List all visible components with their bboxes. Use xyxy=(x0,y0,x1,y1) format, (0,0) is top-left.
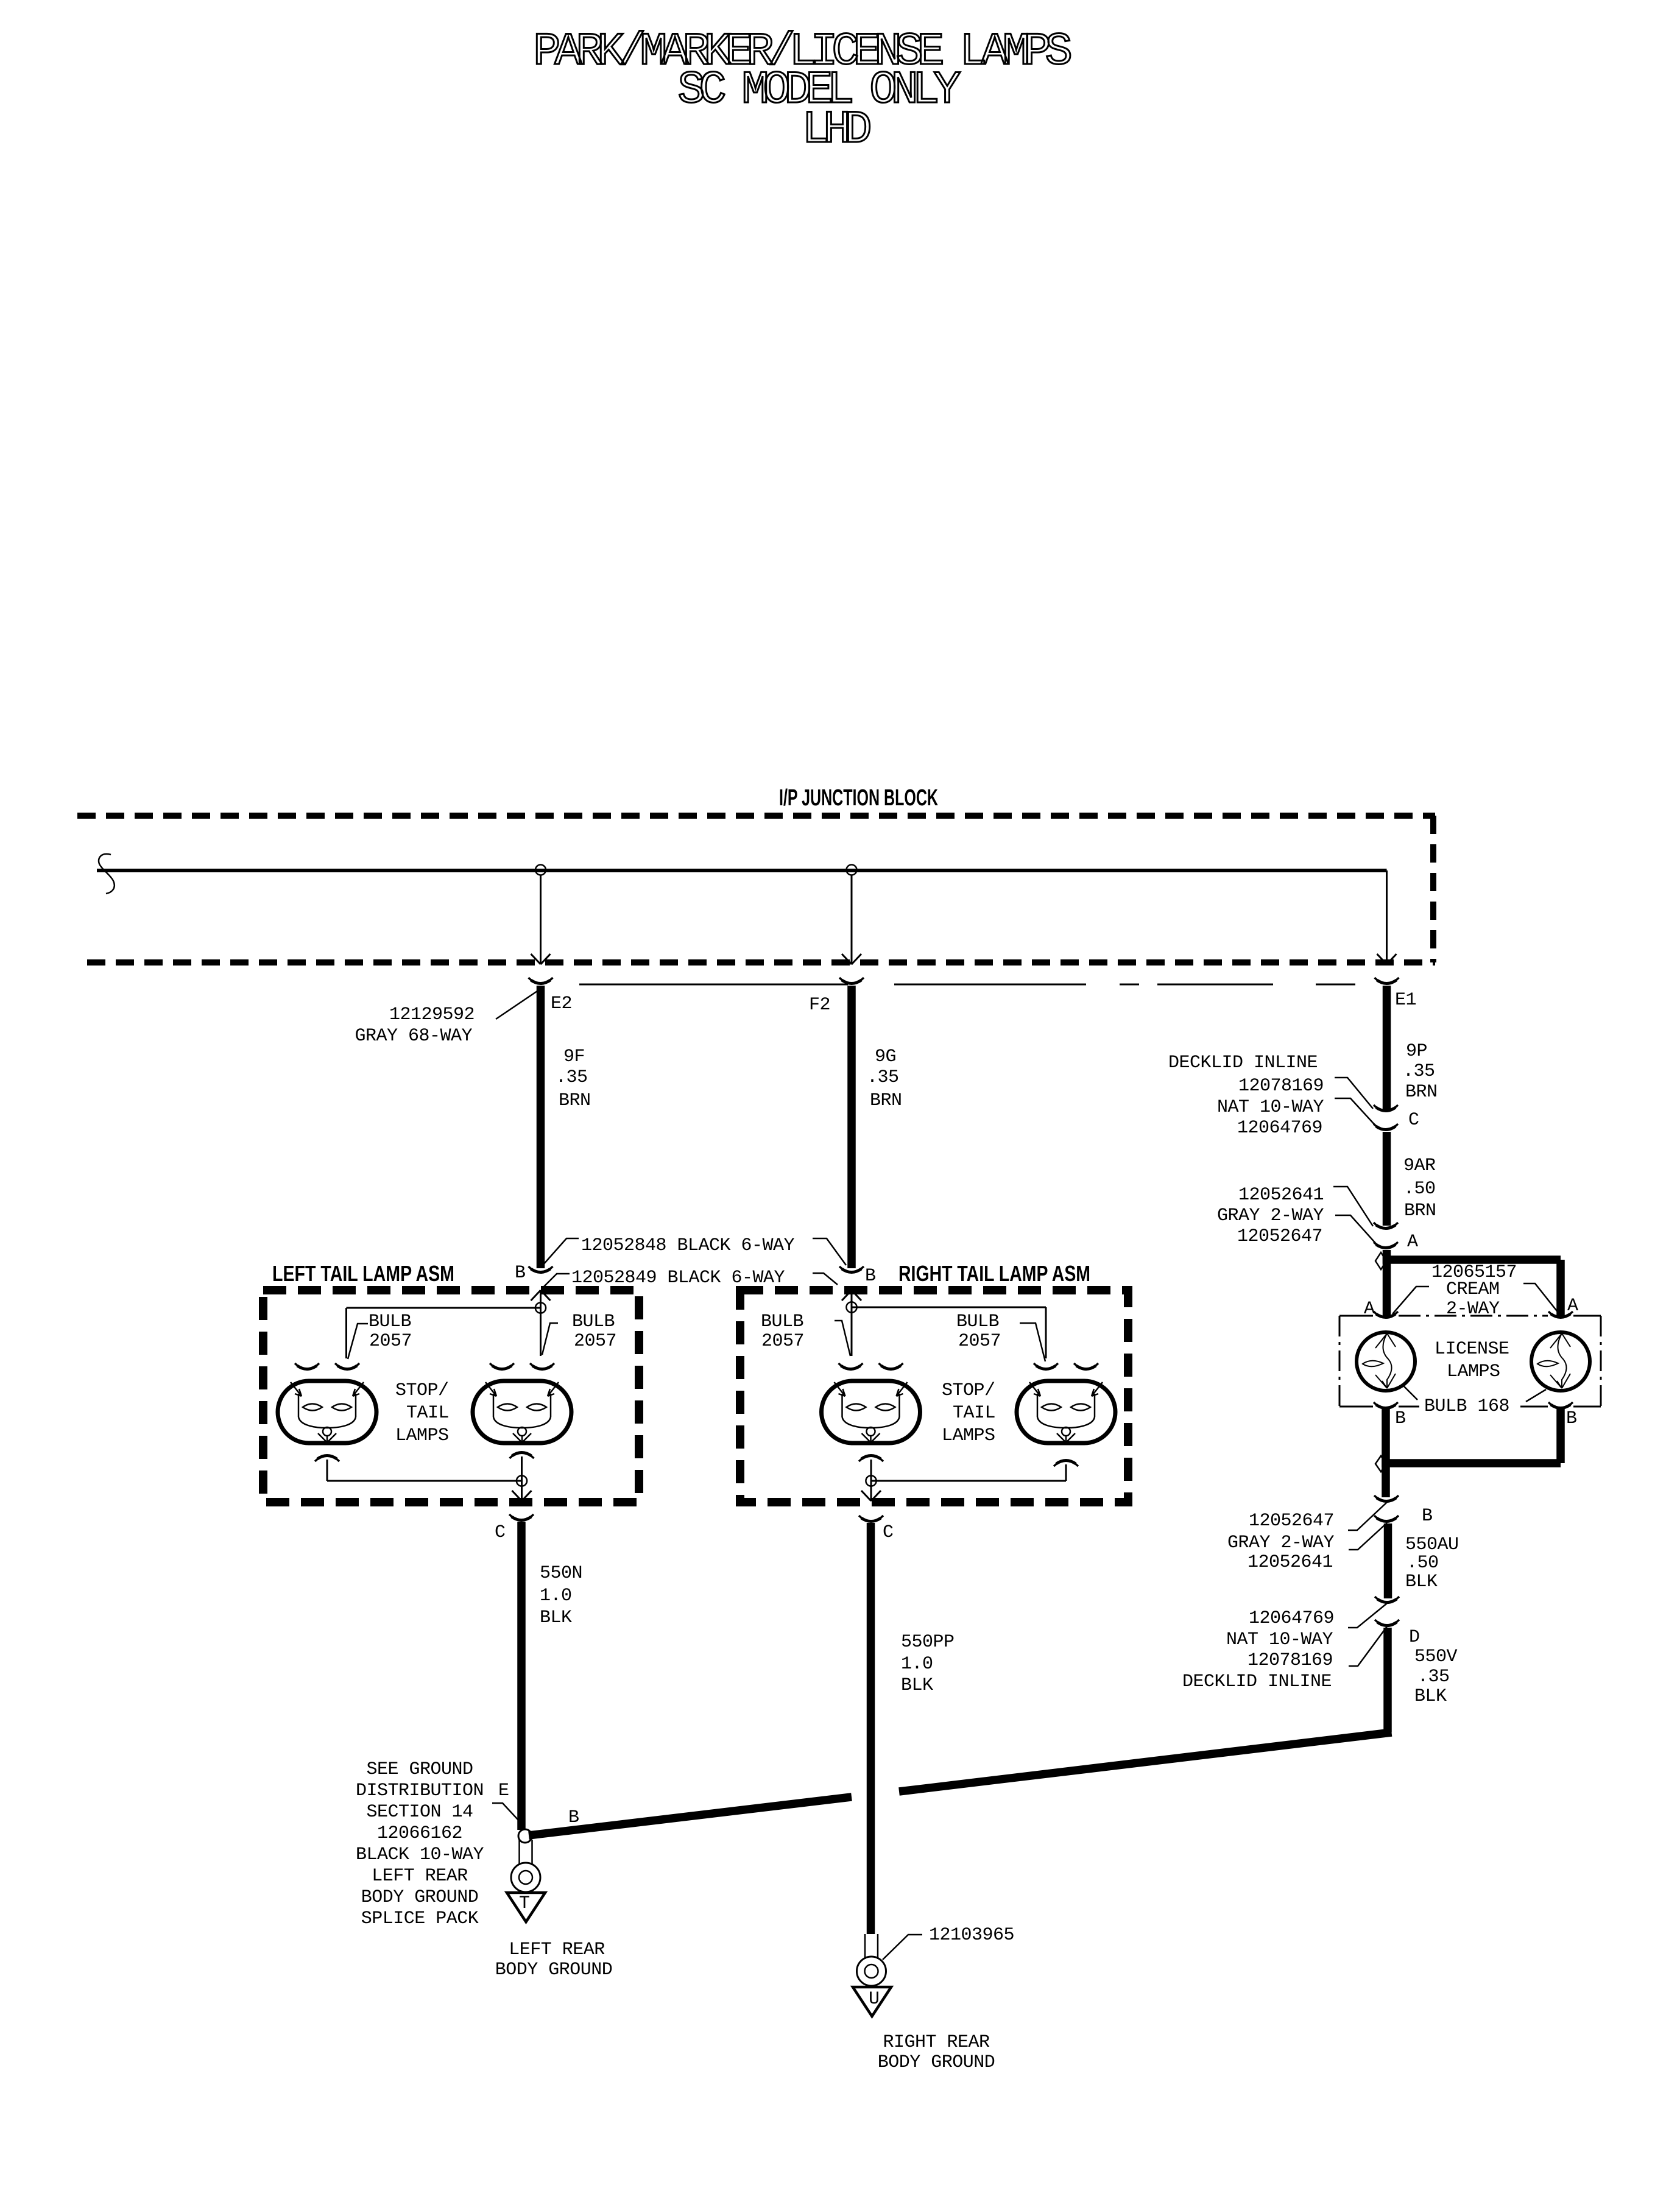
svg-text:GRAY 2-WAY: GRAY 2-WAY xyxy=(1227,1533,1335,1553)
svg-text:12078169: 12078169 xyxy=(1238,1076,1324,1096)
svg-text:9AR: 9AR xyxy=(1403,1156,1436,1176)
svg-text:TAIL: TAIL xyxy=(406,1403,449,1424)
svg-text:.35: .35 xyxy=(867,1067,899,1088)
svg-text:A: A xyxy=(1567,1296,1578,1316)
svg-text:BULB: BULB xyxy=(369,1312,411,1332)
svg-text:STOP/: STOP/ xyxy=(942,1380,995,1401)
svg-text:BRN: BRN xyxy=(870,1090,902,1111)
svg-text:12129592: 12129592 xyxy=(389,1004,475,1025)
svg-text:.35: .35 xyxy=(556,1067,588,1088)
svg-text:9F: 9F xyxy=(563,1047,585,1067)
svg-text:GRAY 2-WAY: GRAY 2-WAY xyxy=(1217,1206,1324,1226)
svg-text:DECKLID INLINE: DECKLID INLINE xyxy=(1168,1053,1318,1073)
svg-text:2057: 2057 xyxy=(761,1331,804,1352)
svg-text:LEFT TAIL LAMP ASM: LEFT TAIL LAMP ASM xyxy=(272,1261,454,1286)
svg-text:9G: 9G xyxy=(875,1047,896,1067)
svg-text:A: A xyxy=(1407,1232,1418,1252)
svg-text:TAIL: TAIL xyxy=(953,1403,995,1424)
svg-text:SEE GROUND: SEE GROUND xyxy=(366,1759,473,1780)
svg-text:T: T xyxy=(519,1893,530,1914)
svg-text:12052641: 12052641 xyxy=(1238,1185,1324,1206)
svg-text:12064769: 12064769 xyxy=(1237,1118,1322,1139)
svg-text:E: E xyxy=(498,1781,509,1801)
svg-text:LAMPS: LAMPS xyxy=(1447,1361,1500,1382)
svg-text:BRN: BRN xyxy=(1405,1082,1438,1103)
svg-text:12064769: 12064769 xyxy=(1249,1608,1334,1629)
svg-text:2057: 2057 xyxy=(574,1331,616,1352)
svg-text:C: C xyxy=(1408,1110,1419,1131)
svg-text:CREAM: CREAM xyxy=(1446,1279,1500,1300)
svg-text:BULB 168: BULB 168 xyxy=(1424,1396,1509,1417)
svg-text:F2: F2 xyxy=(809,995,830,1015)
svg-text:B: B xyxy=(568,1807,579,1828)
svg-text:1.0: 1.0 xyxy=(901,1654,933,1675)
svg-text:NAT 10-WAY: NAT 10-WAY xyxy=(1217,1097,1324,1118)
svg-text:1.0: 1.0 xyxy=(540,1586,572,1606)
svg-text:12078169: 12078169 xyxy=(1248,1650,1333,1671)
svg-text:BLK: BLK xyxy=(901,1675,933,1696)
svg-text:BRN: BRN xyxy=(1404,1201,1436,1221)
svg-text:B: B xyxy=(1566,1408,1577,1429)
svg-text:12103965: 12103965 xyxy=(929,1925,1014,1946)
svg-text:BLACK 10-WAY: BLACK 10-WAY xyxy=(356,1845,484,1865)
svg-text:LICENSE: LICENSE xyxy=(1435,1339,1509,1360)
svg-text:E2: E2 xyxy=(551,994,572,1014)
svg-text:12052641: 12052641 xyxy=(1248,1552,1333,1573)
svg-text:BULB: BULB xyxy=(956,1312,999,1332)
svg-text:9P: 9P xyxy=(1406,1041,1427,1062)
svg-text:C: C xyxy=(883,1522,894,1543)
svg-text:U: U xyxy=(869,1989,880,2010)
svg-text:12052848 BLACK 6-WAY: 12052848 BLACK 6-WAY xyxy=(581,1235,795,1256)
svg-text:.50: .50 xyxy=(1403,1179,1436,1199)
svg-text:550PP: 550PP xyxy=(901,1632,955,1653)
svg-text:.35: .35 xyxy=(1417,1667,1450,1687)
svg-text:E1: E1 xyxy=(1395,990,1416,1011)
svg-text:SPLICE PACK: SPLICE PACK xyxy=(361,1908,479,1929)
svg-text:RIGHT REAR: RIGHT REAR xyxy=(883,2032,990,2053)
svg-text:BULB: BULB xyxy=(572,1312,615,1332)
svg-text:12066162: 12066162 xyxy=(377,1823,462,1844)
svg-text:BLK: BLK xyxy=(540,1608,572,1628)
svg-text:D: D xyxy=(1409,1627,1420,1648)
svg-text:LEFT REAR: LEFT REAR xyxy=(372,1866,468,1887)
svg-text:NAT 10-WAY: NAT 10-WAY xyxy=(1226,1629,1333,1650)
svg-text:DECKLID INLINE: DECKLID INLINE xyxy=(1182,1672,1332,1692)
svg-text:LEFT REAR: LEFT REAR xyxy=(509,1940,605,1960)
svg-text:2057: 2057 xyxy=(958,1331,1001,1352)
svg-text:RIGHT TAIL LAMP ASM: RIGHT TAIL LAMP ASM xyxy=(898,1261,1090,1286)
svg-text:12052849 BLACK 6-WAY: 12052849 BLACK 6-WAY xyxy=(571,1268,785,1288)
svg-text:BODY GROUND: BODY GROUND xyxy=(361,1887,479,1908)
svg-text:GRAY 68-WAY: GRAY 68-WAY xyxy=(355,1026,472,1047)
svg-text:550AU: 550AU xyxy=(1405,1534,1459,1555)
svg-text:B: B xyxy=(865,1266,876,1287)
svg-text:.35: .35 xyxy=(1403,1061,1435,1082)
svg-text:STOP/: STOP/ xyxy=(395,1380,449,1401)
svg-text:B: B xyxy=(515,1263,526,1283)
svg-text:BRN: BRN xyxy=(559,1090,591,1111)
svg-text:SECTION 14: SECTION 14 xyxy=(366,1802,473,1823)
svg-text:12052647: 12052647 xyxy=(1249,1511,1334,1531)
svg-text:BLK: BLK xyxy=(1414,1686,1447,1707)
svg-text:2057: 2057 xyxy=(369,1331,412,1352)
svg-text:BULB: BULB xyxy=(761,1312,803,1332)
svg-text:BODY GROUND: BODY GROUND xyxy=(495,1960,613,1980)
svg-text:B: B xyxy=(1395,1408,1406,1429)
svg-text:LAMPS: LAMPS xyxy=(395,1425,449,1446)
svg-text:I/P JUNCTION BLOCK: I/P JUNCTION BLOCK xyxy=(779,785,938,811)
svg-text:12052647: 12052647 xyxy=(1237,1226,1322,1247)
svg-text:BLK: BLK xyxy=(1405,1572,1438,1592)
svg-text:LAMPS: LAMPS xyxy=(942,1425,995,1446)
svg-text:C: C xyxy=(495,1522,506,1543)
svg-text:550V: 550V xyxy=(1414,1647,1458,1667)
svg-text:.50: .50 xyxy=(1406,1553,1439,1573)
svg-text:LHD: LHD xyxy=(802,104,870,156)
svg-text:B: B xyxy=(1422,1506,1433,1527)
svg-text:DISTRIBUTION: DISTRIBUTION xyxy=(356,1781,484,1801)
svg-text:BODY GROUND: BODY GROUND xyxy=(878,2052,995,2073)
svg-text:550N: 550N xyxy=(540,1563,582,1584)
